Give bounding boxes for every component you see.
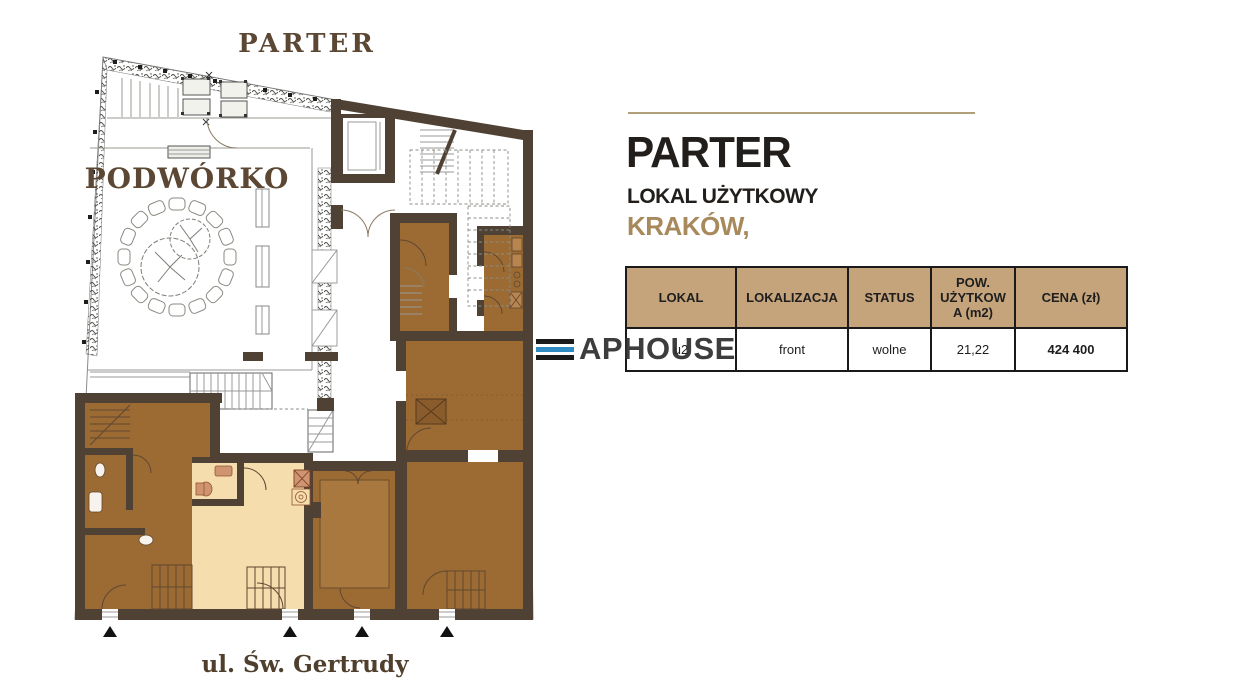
col-lokal: LOKAL	[626, 267, 736, 328]
elevator	[341, 116, 387, 176]
cell-lokalizacja: front	[736, 328, 848, 371]
entrance-markers	[103, 626, 454, 637]
street-label: ul. Św. Gertrudy	[202, 651, 410, 678]
aphouse-logo-text: APHOUSE	[579, 331, 736, 367]
col-cena: CENA (zł)	[1015, 267, 1127, 328]
col-pow-uzytkowa: POW. UŻYTKOWA (m2)	[931, 267, 1015, 328]
city-label: KRAKÓW,	[627, 211, 749, 242]
aphouse-watermark: APHOUSE	[536, 331, 736, 367]
floor-plan: PARTER PODWÓRKO ul. Św. Gertrudy	[0, 0, 620, 699]
page-title: PARTER	[626, 128, 791, 178]
cell-cena: 424 400	[1015, 328, 1127, 371]
heading-rule	[628, 112, 975, 114]
offer-table-header-row: LOKAL LOKALIZACJA STATUS POW. UŻYTKOWA (…	[626, 267, 1127, 328]
plan-title: PARTER	[238, 29, 376, 59]
cell-pow-uzytkowa: 21,22	[931, 328, 1015, 371]
cell-status: wolne	[848, 328, 931, 371]
unit-highlighted	[192, 461, 310, 609]
col-status: STATUS	[848, 267, 931, 328]
property-type-label: LOKAL UŻYTKOWY	[627, 185, 818, 209]
col-lokalizacja: LOKALIZACJA	[736, 267, 848, 328]
courtyard-label: PODWÓRKO	[85, 161, 290, 195]
aphouse-logo-icon	[536, 339, 574, 360]
